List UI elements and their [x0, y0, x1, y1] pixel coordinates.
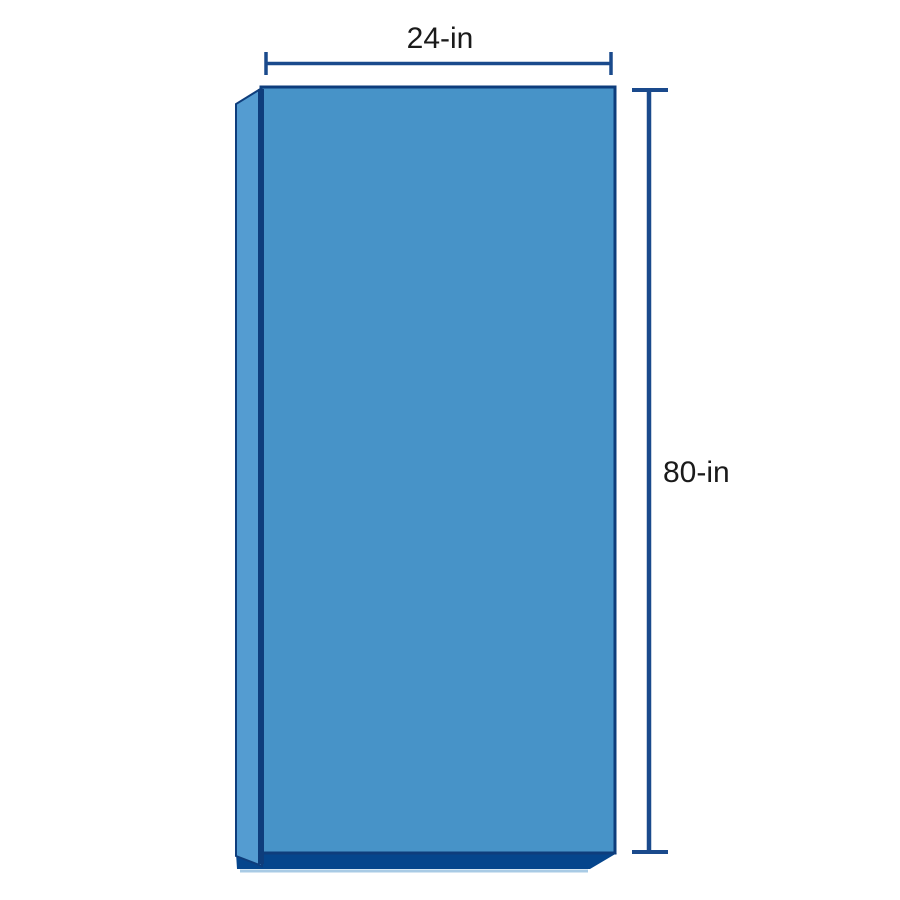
panel-front-face [261, 87, 615, 853]
height-dimension-label: 80-in [663, 456, 730, 489]
height-dimension: 80-in [632, 90, 730, 852]
width-dimension-label: 24-in [407, 22, 474, 55]
width-dimension: 24-in [266, 22, 611, 75]
panel-bottom-face [236, 853, 617, 869]
panel-diagram-svg: 24-in 80-in [0, 0, 900, 900]
product-dimension-diagram: 24-in 80-in [0, 0, 900, 900]
panel-group [236, 87, 617, 871]
